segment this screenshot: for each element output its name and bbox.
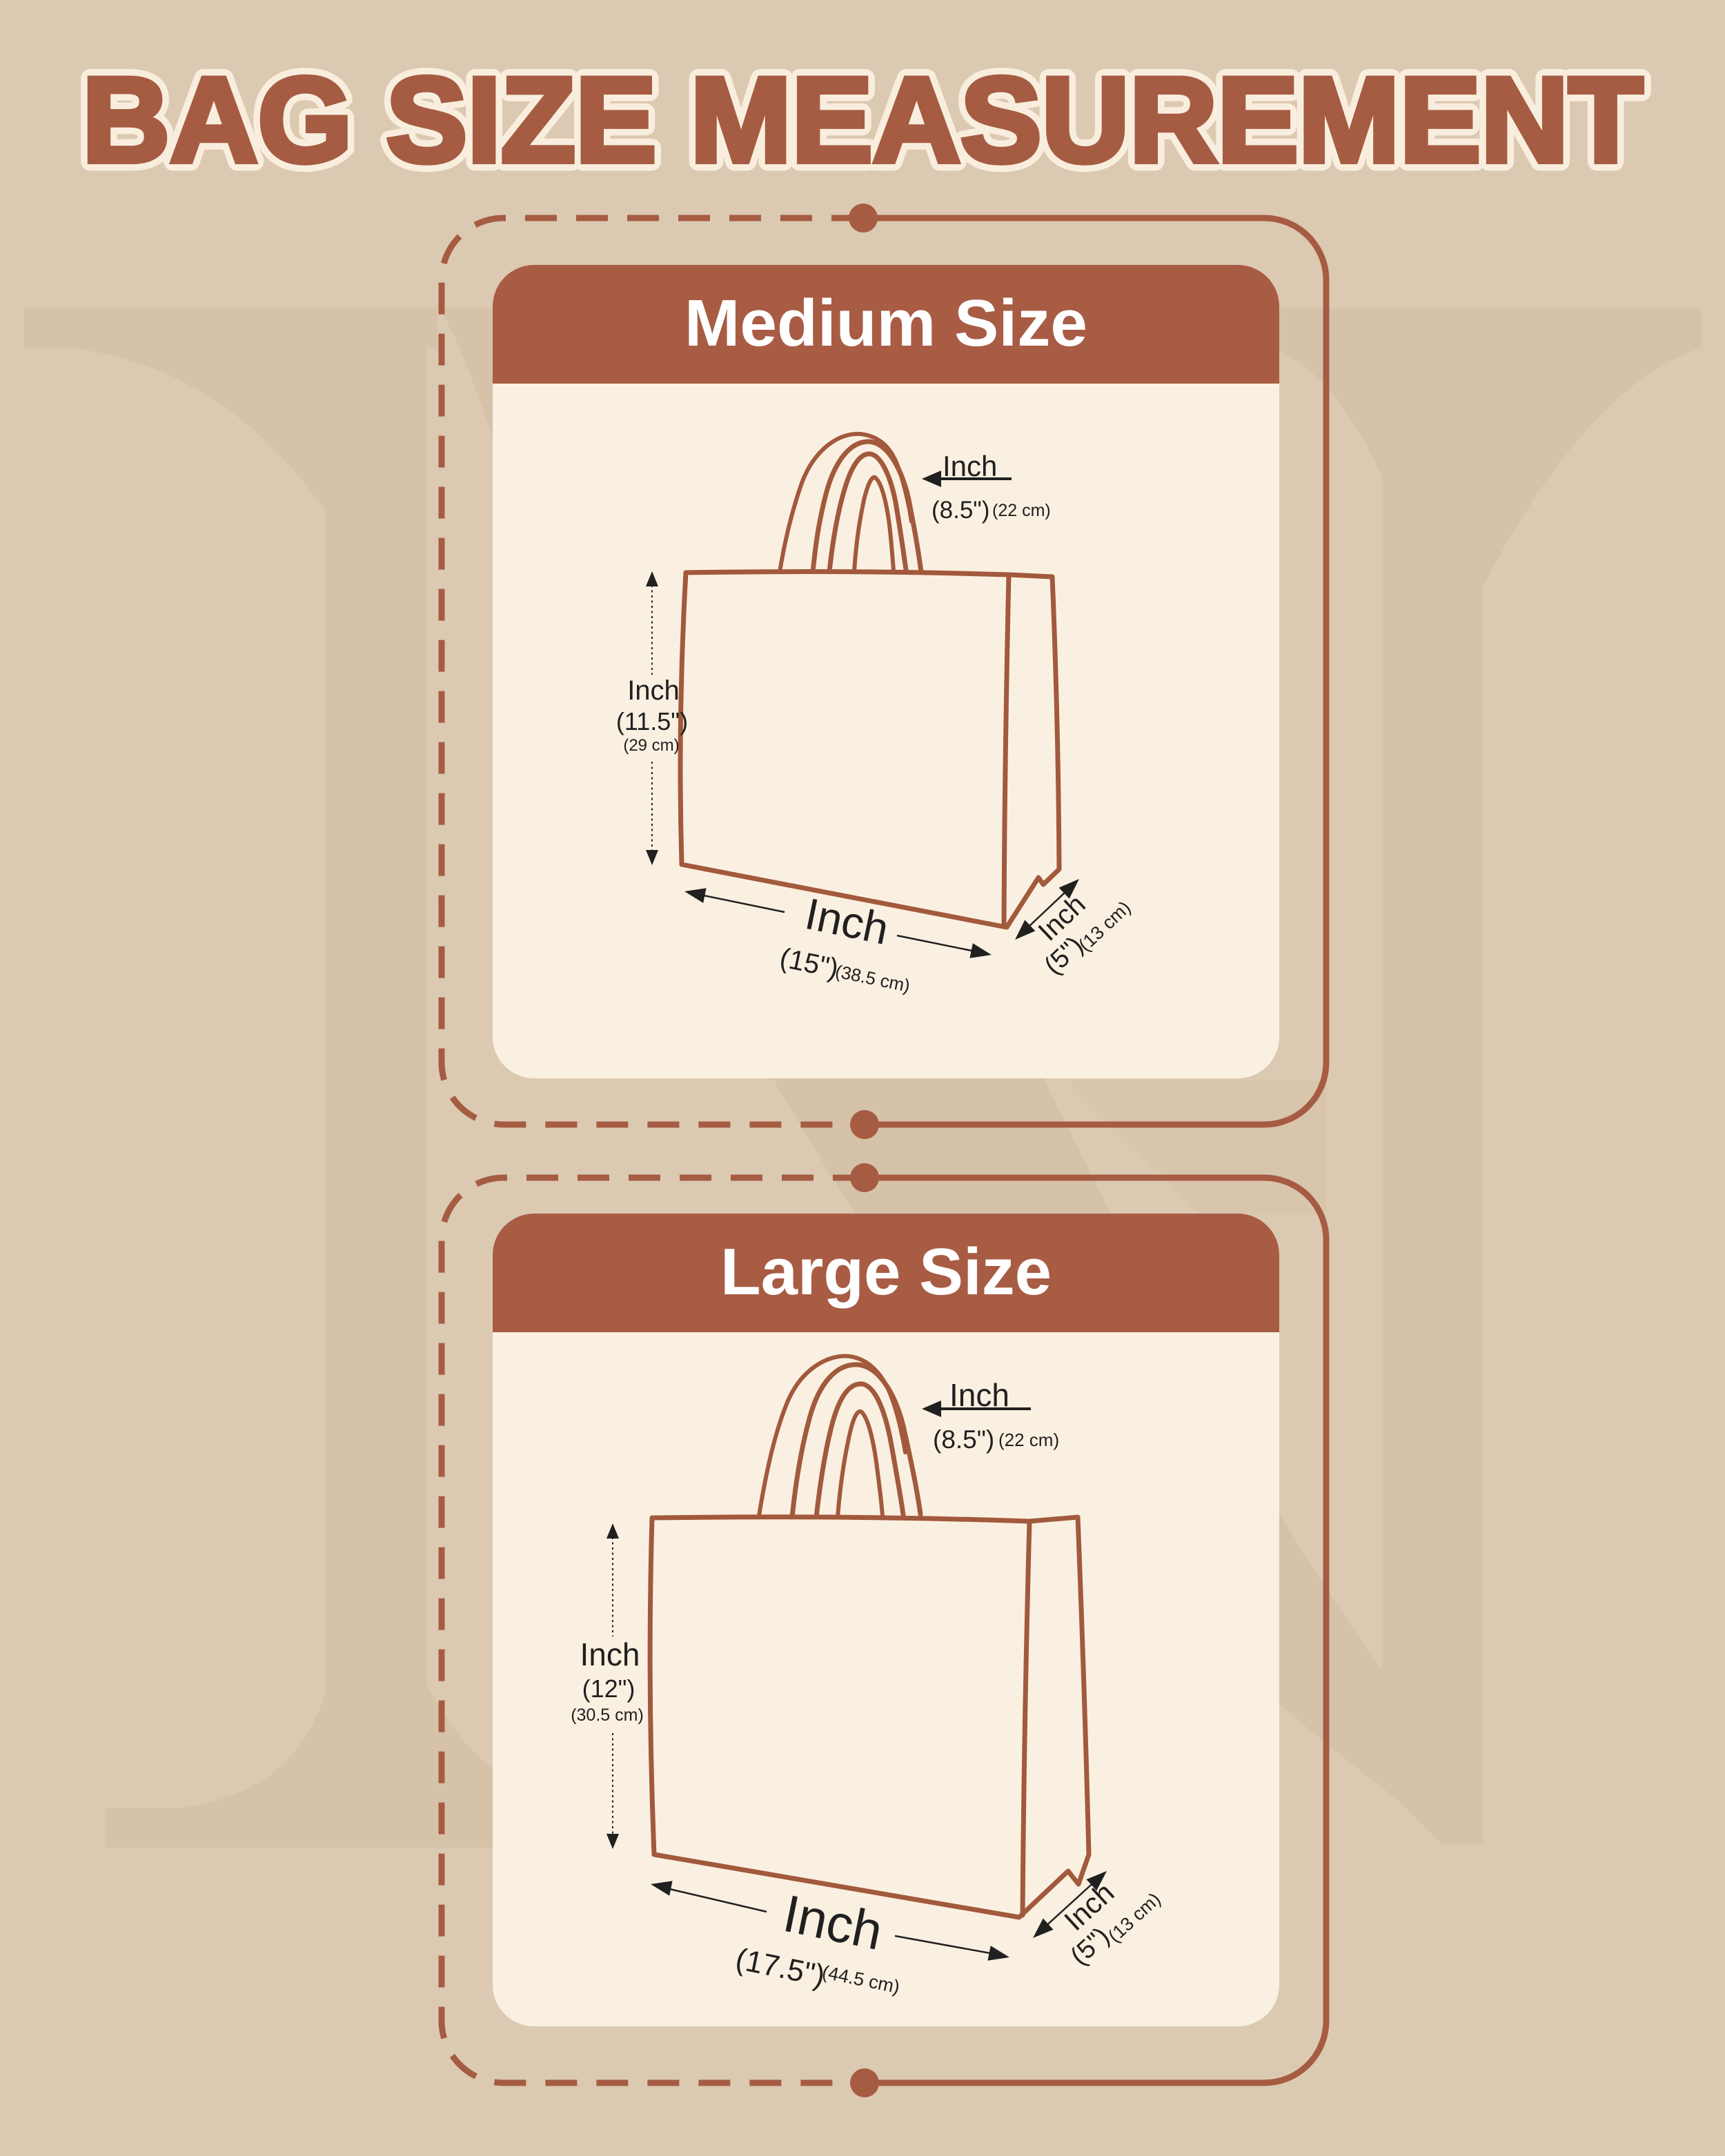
svg-text:Inch: Inch xyxy=(580,1636,640,1672)
svg-text:(8.5"): (8.5") xyxy=(933,1425,994,1454)
svg-text:(30.5 cm): (30.5 cm) xyxy=(571,1705,644,1725)
svg-text:Inch: Inch xyxy=(627,675,680,706)
svg-text:(12"): (12") xyxy=(582,1674,635,1703)
svg-text:Inch: Inch xyxy=(943,450,997,482)
svg-text:BAG SIZE MEASUREMENT: BAG SIZE MEASUREMENT xyxy=(82,53,1643,188)
svg-text:(22 cm): (22 cm) xyxy=(998,1430,1059,1450)
svg-text:(29 cm): (29 cm) xyxy=(623,736,679,755)
svg-text:Large Size: Large Size xyxy=(720,1235,1052,1309)
svg-text:(11.5"): (11.5") xyxy=(616,707,688,735)
svg-text:(8.5"): (8.5") xyxy=(931,497,989,524)
svg-text:Medium Size: Medium Size xyxy=(684,286,1087,360)
svg-text:(22 cm): (22 cm) xyxy=(992,501,1051,520)
